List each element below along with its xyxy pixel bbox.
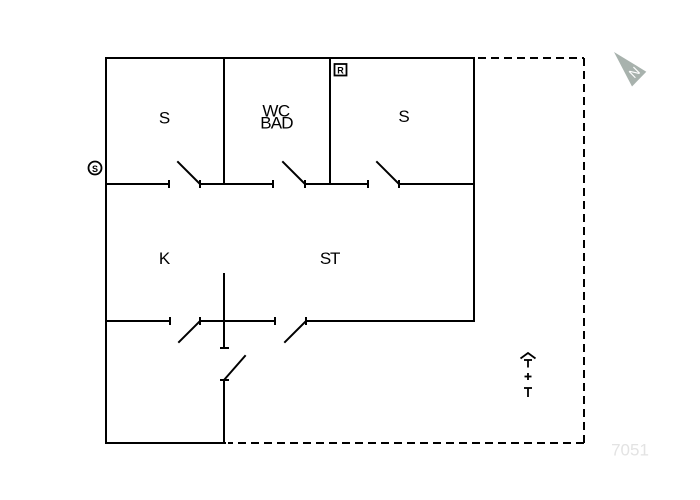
svg-text:S: S — [92, 164, 98, 174]
svg-text:K: K — [159, 249, 171, 268]
svg-text:R: R — [337, 66, 344, 76]
svg-text:S: S — [159, 109, 170, 128]
svg-text:ST: ST — [320, 249, 340, 268]
svg-text:7051: 7051 — [611, 441, 649, 460]
svg-text:S: S — [398, 107, 409, 126]
svg-text:BAD: BAD — [260, 114, 293, 133]
